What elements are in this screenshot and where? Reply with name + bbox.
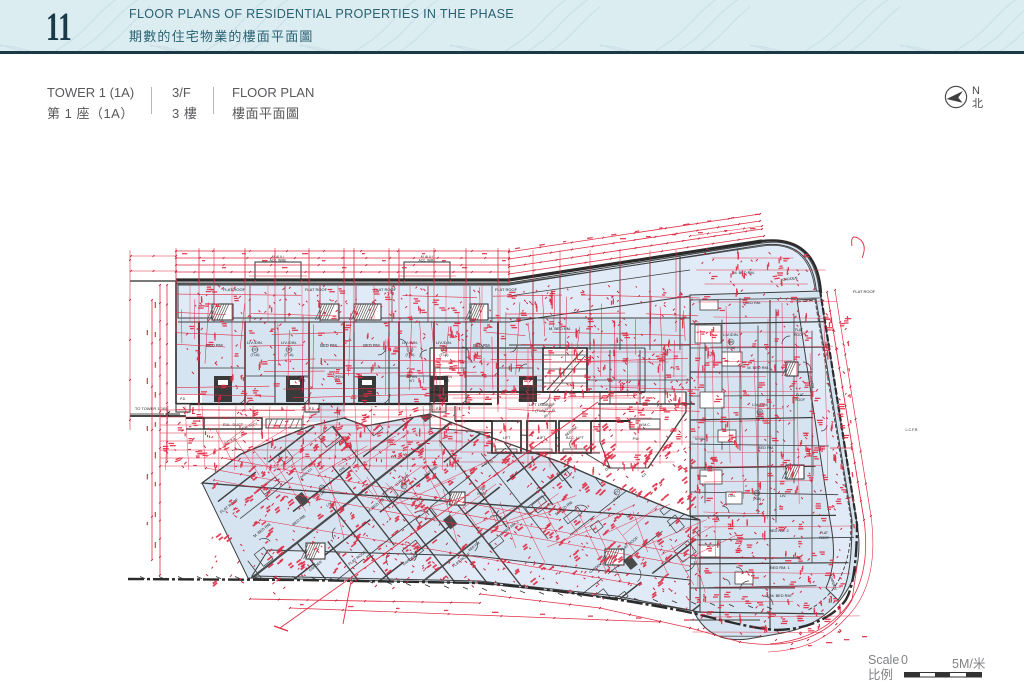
svg-text:FLAT ROOF: FLAT ROOF xyxy=(495,287,518,292)
svg-text:(T1A): (T1A) xyxy=(440,353,449,357)
svg-text:KIT.: KIT. xyxy=(300,379,306,383)
svg-text:M. BED RM.: M. BED RM. xyxy=(770,593,792,598)
svg-text:W.M.C.: W.M.C. xyxy=(639,423,651,427)
svg-text:FLAT: FLAT xyxy=(795,328,803,332)
svg-text:P.D.: P.D. xyxy=(180,397,186,401)
svg-text:(C): (C) xyxy=(755,491,760,495)
svg-text:BED RM.: BED RM. xyxy=(363,343,380,348)
svg-text:P.W.: P.W. xyxy=(633,437,640,441)
svg-text:FLAT ROOF: FLAT ROOF xyxy=(305,287,328,292)
svg-text:BED RM. 1: BED RM. 1 xyxy=(770,565,789,570)
svg-text:LIV.: LIV. xyxy=(780,493,787,498)
svg-text:LIV./DIN.: LIV./DIN. xyxy=(436,340,452,345)
svg-text:ACC. WIRE: ACC. WIRE xyxy=(270,259,287,263)
svg-text:P.D.: P.D. xyxy=(436,407,442,411)
svg-text:(T1A): (T1A) xyxy=(753,497,761,501)
svg-text:P.D.: P.D. xyxy=(309,407,315,411)
svg-text:BED RM.: BED RM. xyxy=(206,343,223,348)
svg-text:LIFT: LIFT xyxy=(503,436,511,440)
svg-text:KIT.: KIT. xyxy=(409,379,415,383)
svg-text:(T1A): (T1A) xyxy=(285,353,294,357)
svg-text:BED RM. 2: BED RM. 2 xyxy=(769,528,788,533)
svg-text:STORE: STORE xyxy=(695,437,705,441)
svg-text:ROOF: ROOF xyxy=(795,398,805,402)
svg-text:FLAT ROOF: FLAT ROOF xyxy=(853,289,876,294)
svg-text:ROOF: ROOF xyxy=(794,333,804,337)
svg-text:(G): (G) xyxy=(252,348,257,352)
svg-text:KIT.: KIT. xyxy=(444,379,450,383)
svg-text:L.C.F.R.: L.C.F.R. xyxy=(906,428,919,432)
svg-text:(T1A): (T1A) xyxy=(251,353,260,357)
svg-text:ROOF: ROOF xyxy=(819,536,829,540)
svg-text:FLAT: FLAT xyxy=(820,531,828,535)
svg-text:BED RM.: BED RM. xyxy=(758,445,774,450)
svg-text:LIV./DIN.: LIV./DIN. xyxy=(723,332,738,337)
svg-text:ACC. WIRE: ACC. WIRE xyxy=(419,259,436,263)
